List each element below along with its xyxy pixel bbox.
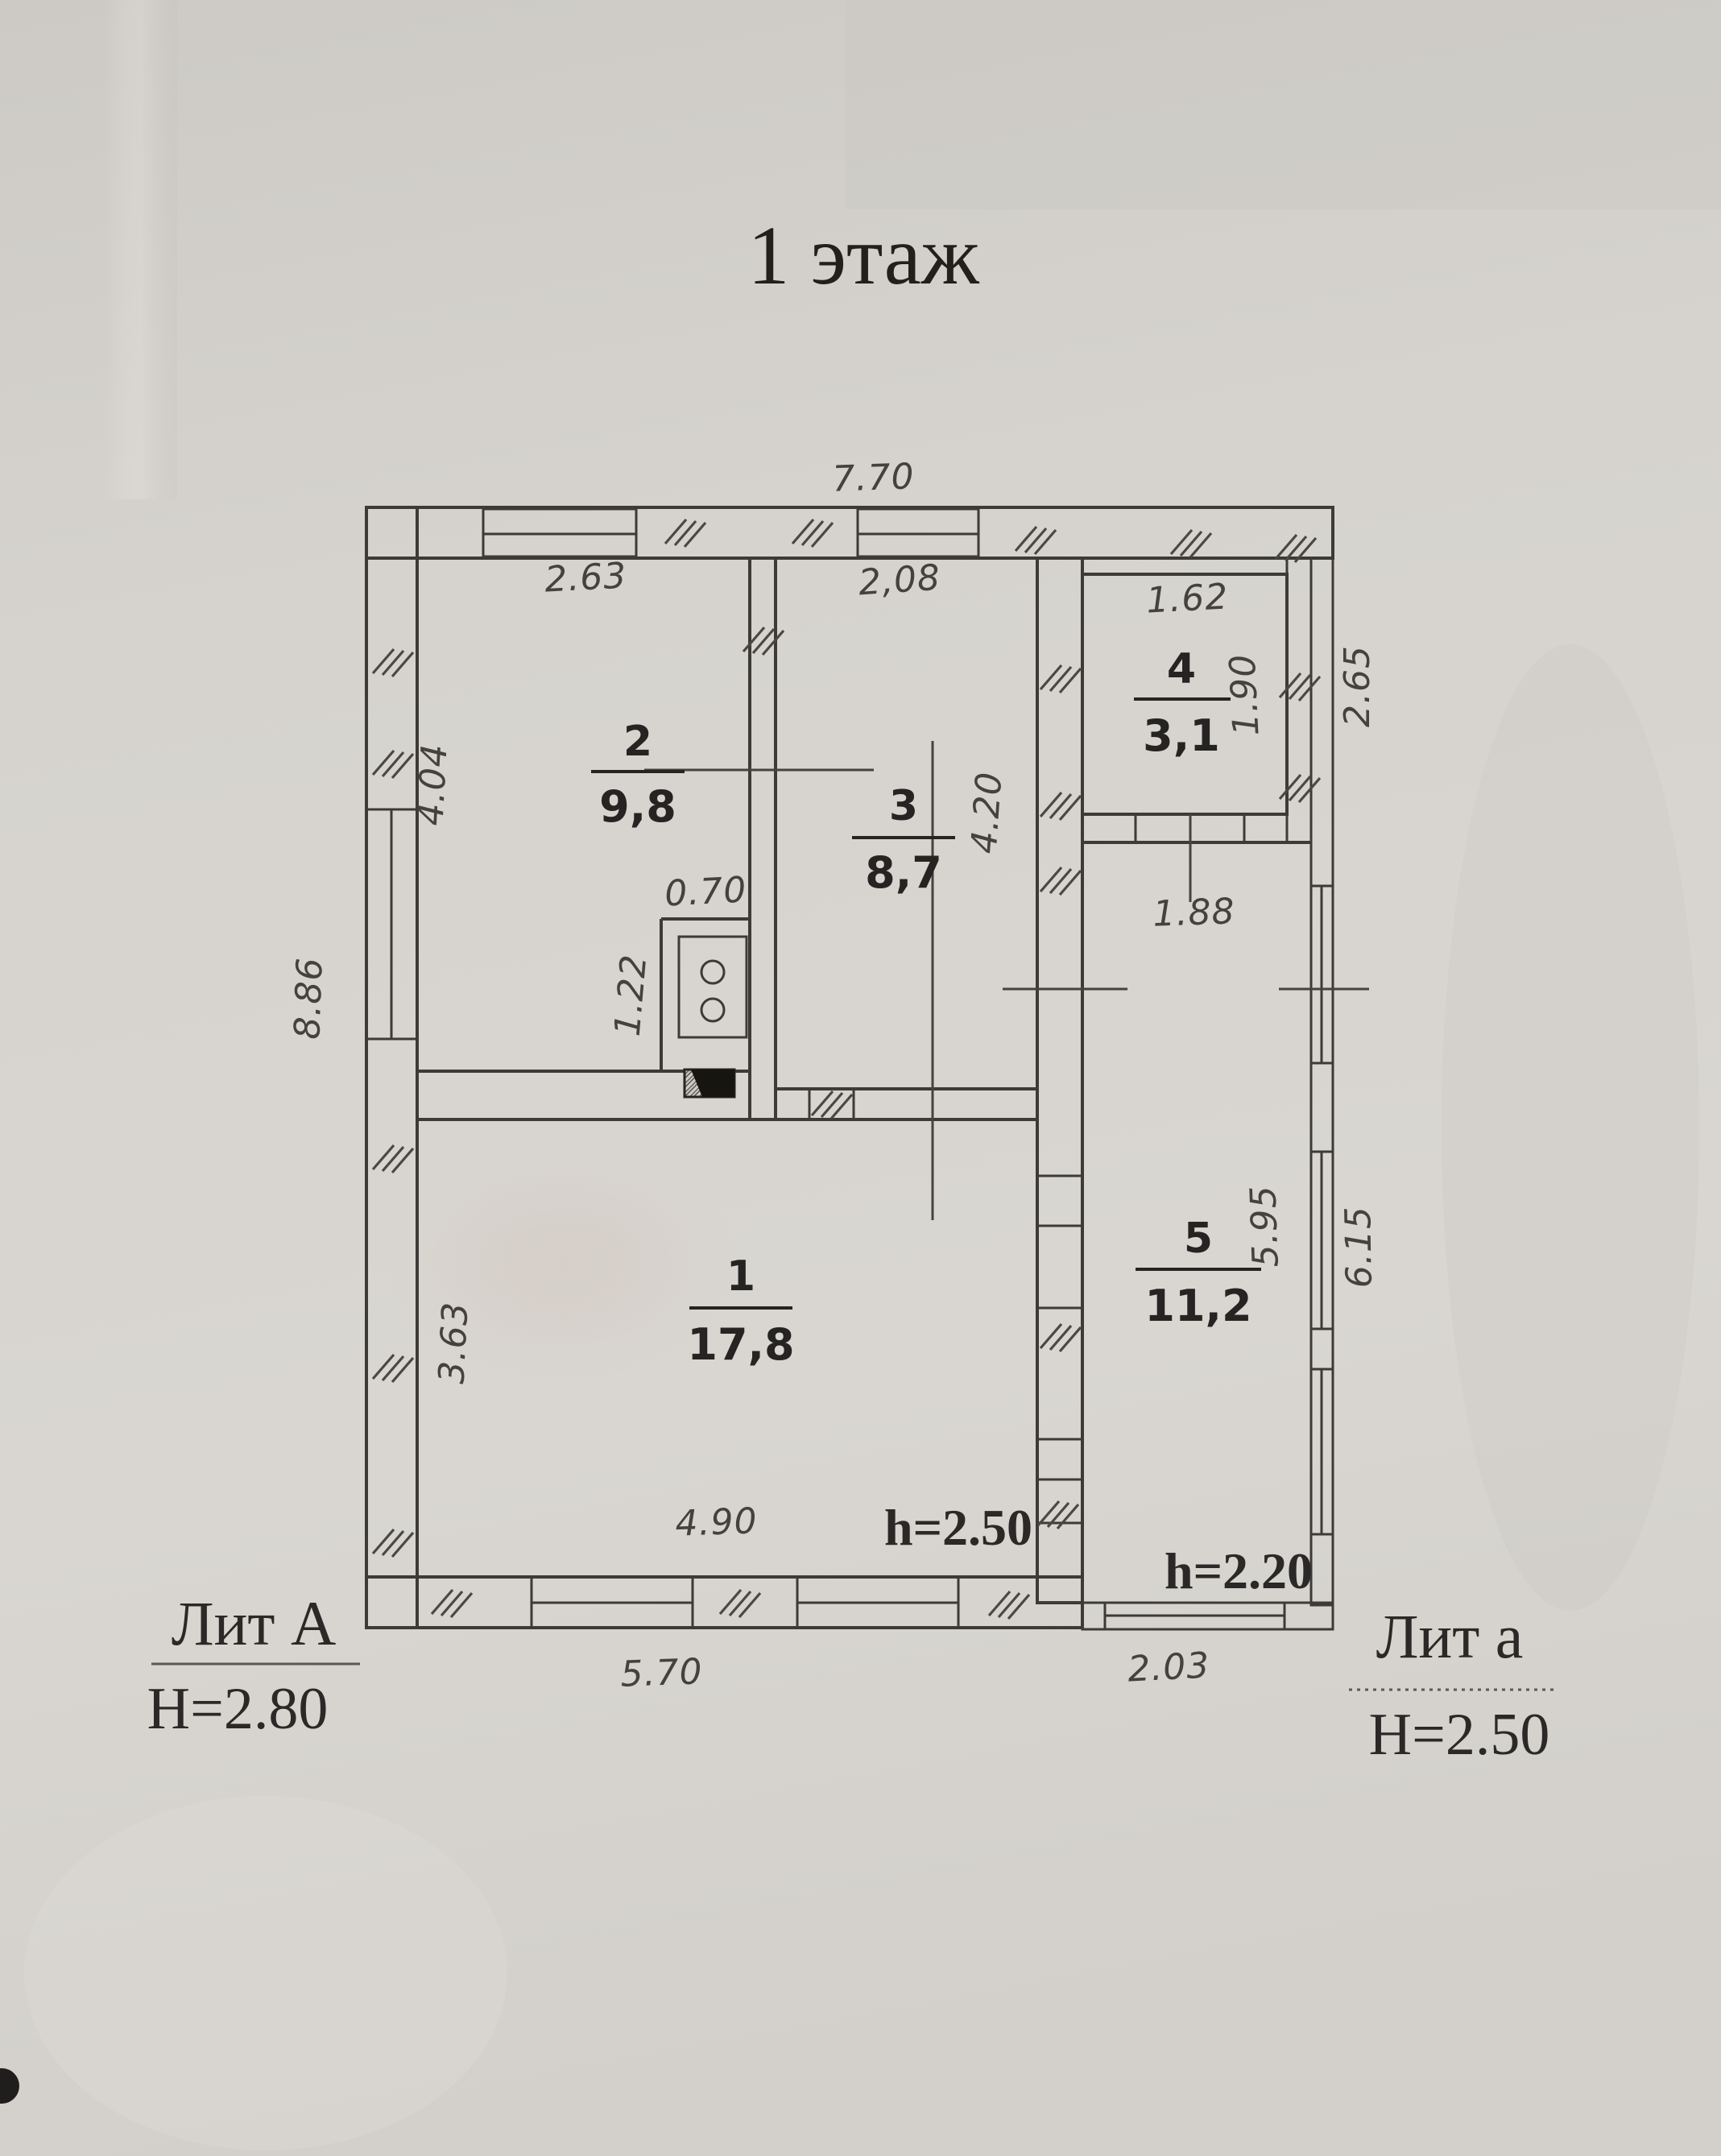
dim-top-width: 7.70: [832, 456, 916, 500]
dim-left-total-height: 8.86: [287, 957, 331, 1041]
dim-nook-width: 0.70: [664, 869, 747, 914]
ceiling-height-room5: h=2.20: [1165, 1542, 1313, 1599]
dim-room2-height: 4.04: [410, 743, 455, 826]
room-number: 1: [726, 1252, 755, 1301]
dim-room5-width: 1.88: [1152, 891, 1236, 935]
room-number: 2: [623, 718, 652, 766]
dim-room4-height: 1.90: [1222, 653, 1267, 737]
dim-room1-width: 4.90: [675, 1500, 759, 1545]
dim-room3-height: 4.20: [964, 770, 1011, 855]
dim-room3-width: 2,08: [857, 557, 941, 604]
page-title: 1 этаж: [747, 209, 980, 302]
legend-main-height: Н=2.80: [147, 1676, 329, 1742]
room-area: 9,8: [599, 781, 676, 832]
legend-annex-height: Н=2.50: [1369, 1702, 1550, 1768]
dim-annex-right-height: 6.15: [1338, 1206, 1380, 1289]
dim-room1-height: 3.63: [431, 1301, 476, 1384]
legend-annex-label: Лит а: [1376, 1601, 1524, 1671]
floor-plan-drawing: 1 этаж: [0, 0, 1721, 2156]
ceiling-height-room1: h=2.50: [884, 1499, 1032, 1556]
dim-room5-height: 5.95: [1243, 1185, 1287, 1268]
room-area: 8,7: [865, 847, 942, 898]
room-area: 17,8: [687, 1319, 794, 1370]
dim-room2-width: 2.63: [544, 555, 627, 600]
dim-annex-top-height: 2.65: [1337, 645, 1378, 727]
dim-bottom-main-width: 5.70: [620, 1651, 704, 1695]
dim-nook-depth: 1.22: [607, 953, 656, 1038]
chimney-flue-icon: [685, 1070, 734, 1097]
room-area: 3,1: [1143, 710, 1220, 761]
room-number: 5: [1184, 1215, 1213, 1263]
paper-background: [0, 0, 1721, 2156]
dim-room4-width: 1.62: [1145, 576, 1229, 621]
legend-main-label: Лит А: [172, 1588, 337, 1658]
scanned-page: 1 этаж: [0, 0, 1721, 2156]
room-number: 3: [889, 782, 918, 830]
room-area: 11,2: [1144, 1281, 1251, 1331]
room-number: 4: [1167, 645, 1196, 693]
dim-bottom-annex-width: 2.03: [1127, 1645, 1210, 1690]
